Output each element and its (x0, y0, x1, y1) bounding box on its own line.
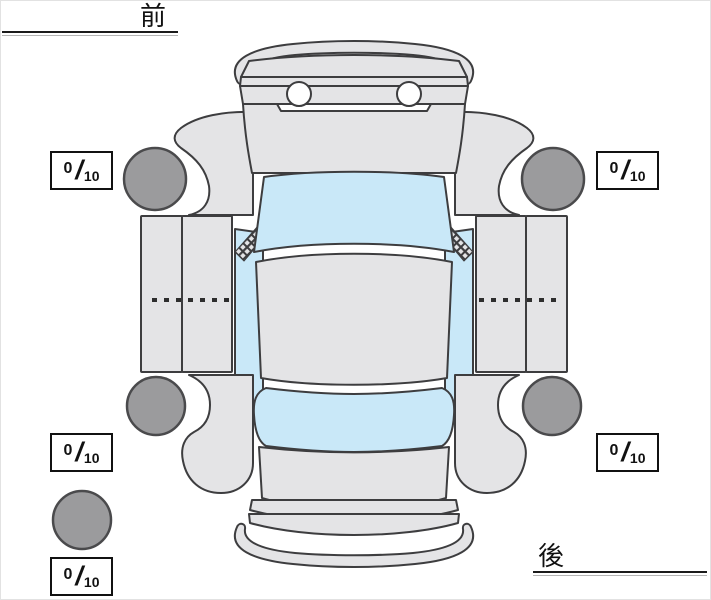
rating-front-right-max: 10 (630, 168, 646, 184)
door-panel (182, 216, 232, 372)
rear-window-glass (254, 388, 454, 452)
front-fender (175, 112, 253, 215)
rear-fender (182, 375, 253, 493)
front-label: 前 (140, 3, 167, 29)
rating-rear-right-value: 0 (610, 442, 619, 460)
rating-rear-left-max: 10 (84, 450, 100, 466)
front-face-panel (240, 86, 468, 104)
front-grille-band (241, 55, 467, 77)
tire-front-left (124, 148, 186, 210)
rating-front-left-slash: / (75, 159, 83, 182)
tire-front-right (522, 148, 584, 210)
rating-rear-right-slash: / (621, 441, 629, 464)
front-underline-shadow (2, 35, 178, 36)
front-grille-strip (240, 77, 468, 86)
rating-spare-slash: / (75, 565, 83, 588)
rating-front-left-max: 10 (84, 168, 100, 184)
rating-rear-left: 0 / 10 (50, 433, 113, 472)
roof-panel (256, 254, 452, 385)
rating-front-right-slash: / (621, 159, 629, 182)
car-diagram (1, 1, 711, 600)
rating-front-right: 0 / 10 (596, 151, 659, 190)
rating-rear-left-slash: / (75, 441, 83, 464)
rear-valance-strip-2 (249, 514, 459, 535)
rating-spare: 0 / 10 (50, 557, 113, 596)
hood (243, 104, 465, 173)
rating-front-left-value: 0 (64, 160, 73, 178)
rear-underline (533, 571, 707, 573)
rating-spare-max: 10 (84, 574, 100, 590)
tire-rear-left (127, 377, 185, 435)
headlight-right (397, 82, 421, 106)
front-underline (2, 31, 178, 33)
rating-rear-right: 0 / 10 (596, 433, 659, 472)
tire-rear-right (523, 377, 581, 435)
windshield-glass (254, 172, 454, 252)
rating-spare-value: 0 (64, 566, 73, 584)
rear-label: 後 (538, 543, 565, 569)
rating-front-right-value: 0 (610, 160, 619, 178)
tire-spare (53, 491, 111, 549)
tire-condition-diagram: 前 後 0 / 10 0 / 10 0 / 10 0 / 10 0 / 10 (0, 0, 711, 600)
rocker-panel (141, 216, 182, 372)
rating-rear-right-max: 10 (630, 450, 646, 466)
rating-front-left: 0 / 10 (50, 151, 113, 190)
headlight-left (287, 82, 311, 106)
rear-underline-shadow (533, 575, 707, 576)
rating-rear-left-value: 0 (64, 442, 73, 460)
